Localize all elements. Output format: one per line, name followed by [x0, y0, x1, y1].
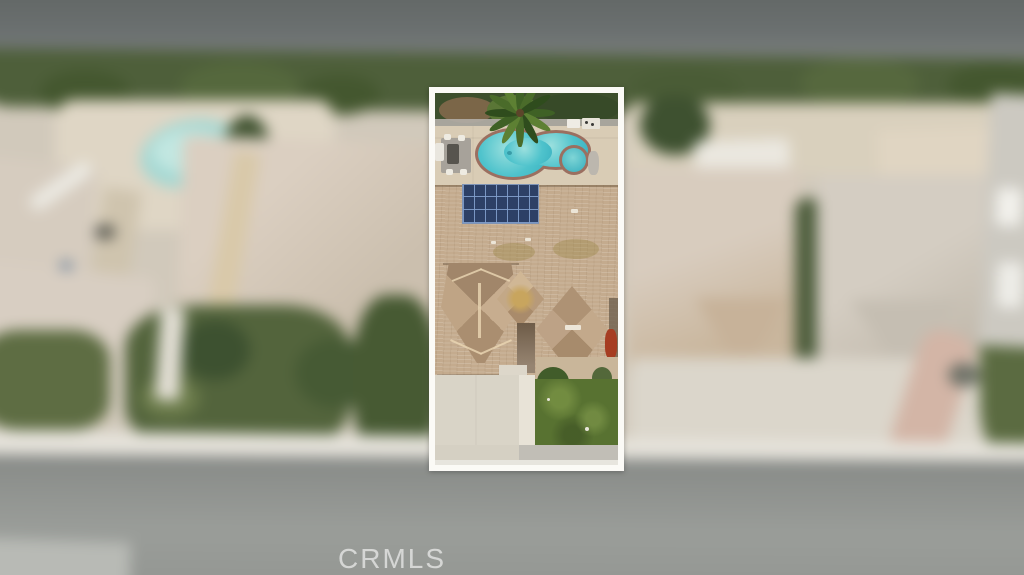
roof-moss: [553, 239, 599, 259]
ridge-line: [478, 283, 481, 338]
grill-dot: [585, 121, 588, 124]
front-street: [0, 454, 1024, 575]
parked-car: [996, 262, 1024, 309]
patio-chair: [460, 169, 467, 175]
solar-panel-array: [462, 184, 539, 224]
driveway-shadow: [948, 363, 980, 387]
roof-vent: [571, 209, 578, 213]
patio-chair: [444, 134, 451, 140]
crmls-watermark: CRMLS: [338, 543, 446, 575]
highlighted-property: [435, 93, 618, 465]
aerial-listing-photo: CRMLS: [0, 0, 1024, 575]
garden-statue: [588, 151, 599, 175]
patio-table: [447, 144, 459, 164]
corner-lawn: [0, 330, 110, 430]
roof-vent: [565, 325, 581, 330]
spa: [562, 148, 586, 172]
property-boundary-frame: [429, 87, 624, 471]
roof-vent: [491, 241, 496, 244]
tree-canopy: [180, 320, 250, 380]
front-lawn: [535, 379, 618, 445]
roof-moss: [493, 243, 535, 261]
pool-drain: [507, 151, 512, 155]
neighbor-roof-right-1: [628, 168, 800, 378]
parked-car: [995, 187, 1024, 227]
patio-chair: [458, 135, 465, 141]
lounge-chair: [435, 143, 444, 161]
grill-dot: [591, 123, 594, 126]
palm-tree: [483, 93, 557, 147]
red-object: [605, 329, 617, 359]
sprinkler-dot: [547, 398, 550, 401]
sprinkler-dot: [585, 427, 589, 431]
far-curb: [0, 537, 131, 575]
patio-chair: [446, 169, 453, 175]
curb: [435, 460, 618, 465]
hedge-blob: [800, 58, 920, 108]
bbq-island: [567, 119, 580, 128]
roof-vent: [525, 238, 531, 241]
yard-object: [95, 225, 115, 239]
porch-step: [499, 365, 527, 375]
